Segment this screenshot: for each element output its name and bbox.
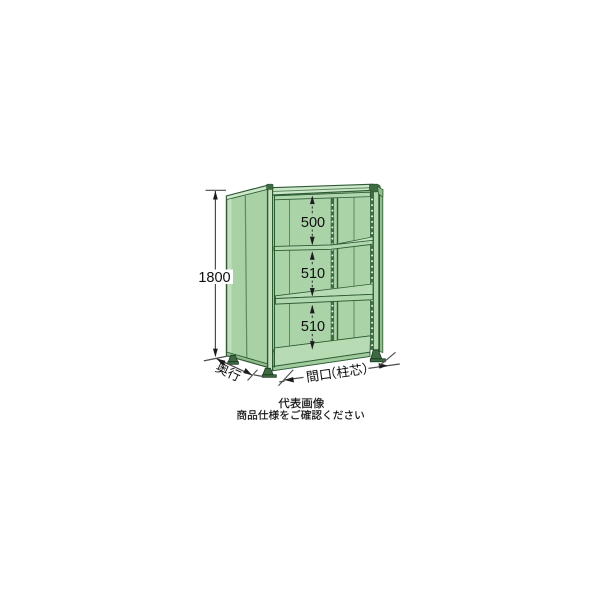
svg-text:510: 510: [301, 266, 325, 282]
svg-text:1800: 1800: [198, 270, 230, 286]
svg-text:510: 510: [301, 319, 325, 335]
svg-text:500: 500: [301, 215, 325, 231]
